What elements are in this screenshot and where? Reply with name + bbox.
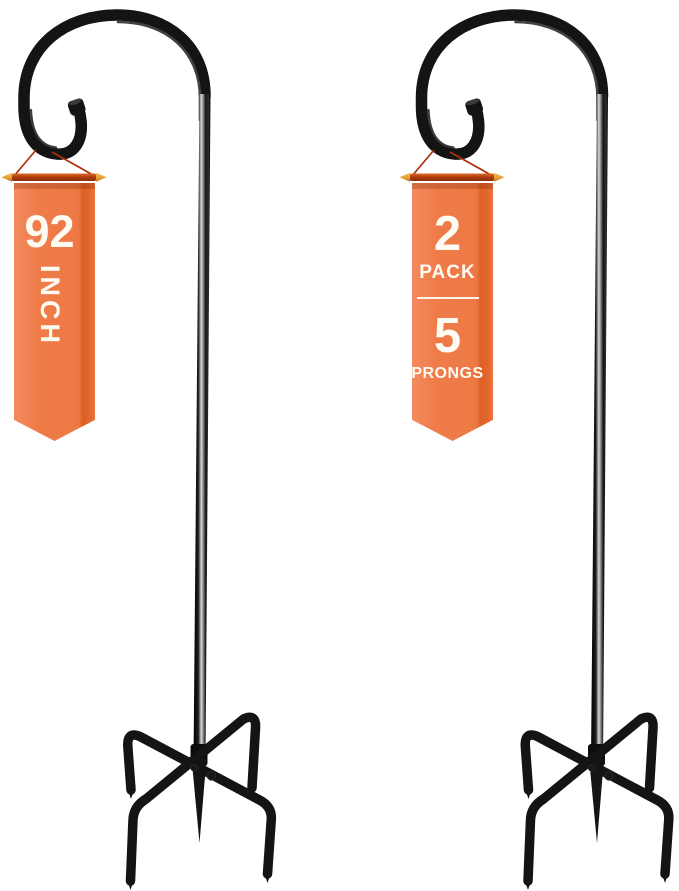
banner-92-inch-content: 92 INCH <box>14 183 95 441</box>
shepherd-hook-right <box>422 15 670 890</box>
product-image: 92 INCH 2 PACK 5 PRONGS <box>0 0 679 891</box>
banner-pack-label: PACK <box>419 263 475 282</box>
shepherd-hooks-illustration <box>0 0 679 891</box>
banner-divider <box>417 297 479 299</box>
banner-size-unit: INCH <box>36 265 63 347</box>
banner-92-inch: 92 INCH <box>14 183 95 441</box>
banner-pack-prongs-content: 2 PACK 5 PRONGS <box>412 183 493 441</box>
shepherd-hook-left <box>24 15 272 890</box>
banner-pack-count: 2 <box>434 210 461 259</box>
banner-prong-count: 5 <box>434 312 461 361</box>
banner-prong-label: PRONGS <box>411 366 483 382</box>
banner-2-pack-5-prongs: 2 PACK 5 PRONGS <box>412 183 493 441</box>
banner-size-value: 92 <box>24 209 74 254</box>
